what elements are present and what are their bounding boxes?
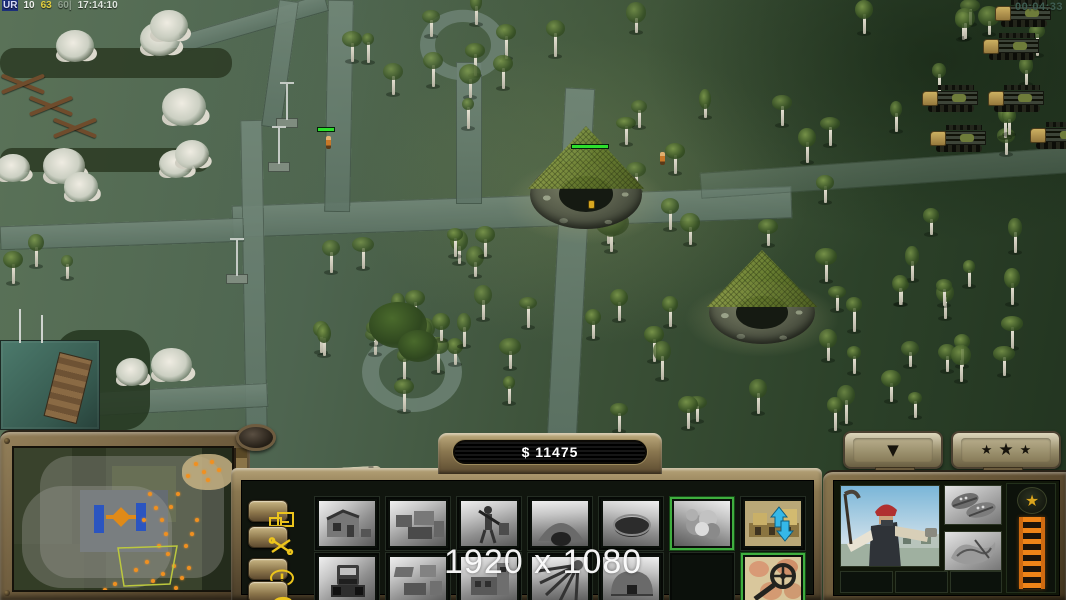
truck-tarp	[952, 94, 966, 102]
build-item-structure-arrows[interactable]	[741, 497, 805, 550]
birch-canopy	[749, 379, 766, 397]
lamppost	[276, 82, 300, 128]
birch-canopy	[955, 8, 974, 28]
worker-unit[interactable]	[660, 152, 665, 165]
birch-canopy	[1004, 268, 1019, 288]
rooftop-building	[0, 340, 100, 430]
truck-tarp	[960, 134, 974, 142]
birch-canopy	[470, 0, 483, 11]
birch-canopy	[474, 285, 492, 305]
birch-canopy	[459, 64, 481, 84]
birch-canopy	[422, 10, 440, 24]
birch-trunk	[527, 306, 530, 328]
down-arrow-icon: ▼	[887, 441, 899, 459]
birch-canopy	[546, 20, 565, 37]
birch-canopy	[317, 324, 331, 343]
birch-canopy	[847, 346, 862, 359]
rank-stars-icon: ★★★	[961, 438, 1051, 462]
control-knob	[236, 424, 276, 451]
birch-canopy	[503, 376, 515, 389]
build-thumbnail	[319, 557, 375, 600]
gla-truck[interactable]	[930, 125, 988, 153]
supply-barrel	[588, 200, 595, 209]
big-tree-canopy	[398, 330, 438, 362]
birch-canopy	[499, 338, 520, 355]
truck-tracks	[1036, 142, 1066, 149]
worker-unit[interactable]	[326, 136, 331, 149]
birch-canopy	[496, 24, 516, 40]
health-bar	[571, 144, 609, 149]
birch-canopy	[342, 31, 362, 47]
collapse-button[interactable]: ▼	[843, 431, 943, 469]
truck-cab	[983, 39, 999, 54]
lamppost	[226, 238, 250, 284]
unit-panel-inner: ★	[833, 480, 1060, 596]
flowering-tree	[150, 10, 187, 42]
unit-panel: ★	[823, 470, 1066, 600]
birch-canopy	[855, 0, 873, 18]
debug-segment: 17:14:10	[77, 0, 119, 11]
birch-canopy	[890, 101, 903, 118]
wooden-ramp	[44, 352, 93, 424]
antenna	[19, 309, 21, 343]
debug-segment: 63	[40, 0, 53, 11]
gla-truck[interactable]	[922, 85, 980, 113]
build-thumbnail	[532, 501, 588, 546]
debug-segment: 60|	[57, 0, 73, 11]
birch-canopy	[631, 100, 648, 114]
truck-tracks	[1001, 20, 1047, 27]
build-thumbnail	[390, 501, 446, 546]
build-thumbnail	[461, 501, 517, 546]
birch-canopy	[432, 313, 451, 331]
build-thumbnail	[603, 501, 659, 546]
birch-canopy	[881, 370, 901, 388]
truck-cab	[988, 91, 1004, 106]
match-timer: 00:04:33	[1015, 1, 1063, 13]
truck-cab	[922, 91, 938, 106]
gla-truck[interactable]	[1030, 122, 1066, 150]
truck-tracks	[989, 53, 1035, 60]
command-slot-empty	[840, 571, 893, 593]
xp-meter: ★	[1006, 483, 1056, 593]
gla-truck[interactable]	[983, 33, 1041, 61]
birch-canopy	[457, 313, 471, 331]
truck-tracks	[936, 145, 982, 152]
rank-star: ★	[981, 444, 993, 457]
money-display: $ 11475	[453, 440, 647, 464]
birch-canopy	[626, 2, 647, 23]
truck-guns	[999, 33, 1035, 38]
build-thumbnail	[319, 501, 375, 546]
birch-canopy	[475, 226, 496, 243]
birch-trunk	[853, 308, 856, 332]
birch-canopy	[493, 55, 513, 72]
flowering-tree	[162, 88, 206, 126]
birch-canopy	[772, 95, 791, 109]
build-thumbnail	[390, 557, 446, 600]
antenna	[41, 315, 43, 343]
birch-canopy	[828, 286, 845, 299]
camera-frustum	[14, 448, 234, 592]
birch-canopy	[28, 234, 44, 251]
birch-canopy	[758, 219, 778, 234]
birch-canopy	[932, 63, 946, 77]
birch-canopy	[610, 289, 628, 306]
birch-canopy	[993, 346, 1014, 361]
truck-guns	[1004, 85, 1040, 90]
lamppost-arm	[272, 126, 286, 128]
birch-canopy	[3, 251, 24, 269]
rank-button[interactable]: ★★★	[951, 431, 1061, 469]
upgrade-cloth[interactable]	[944, 531, 1002, 571]
birch-canopy	[908, 392, 923, 405]
command-slot-empty	[895, 571, 948, 593]
gla-truck[interactable]	[988, 85, 1046, 113]
birch-canopy	[61, 255, 73, 267]
command-slot-empty	[950, 571, 1002, 593]
lamppost-arm	[230, 238, 244, 240]
birch-trunk	[467, 107, 470, 129]
lamppost-pole	[236, 238, 238, 276]
birch-canopy	[1001, 316, 1023, 330]
truck-cab	[995, 6, 1011, 21]
rank-star: ★	[998, 442, 1013, 459]
birch-canopy	[662, 296, 678, 312]
build-item-compound[interactable]	[386, 497, 450, 550]
lamppost-pole	[286, 82, 288, 120]
horn-button[interactable]	[248, 581, 288, 600]
debug-segment: UR	[2, 0, 18, 11]
truck-cab	[1030, 128, 1046, 143]
build-item-map-scan[interactable]	[741, 553, 805, 600]
birch-canopy	[1008, 218, 1022, 236]
birch-canopy	[394, 379, 414, 394]
birch-canopy	[798, 128, 815, 147]
flowering-tree	[64, 172, 99, 201]
truck-guns	[1046, 122, 1066, 127]
build-thumbnail	[745, 557, 801, 600]
truck-guns	[938, 85, 974, 90]
build-item-buildings[interactable]	[386, 553, 450, 600]
lamppost-pole	[278, 126, 280, 164]
wooden-fence	[0, 74, 96, 146]
birch-canopy	[846, 297, 863, 311]
camo-net-canopy	[703, 250, 821, 307]
repair-button[interactable]	[248, 526, 288, 548]
health-bar	[317, 127, 335, 132]
birch-trunk	[367, 42, 370, 63]
minimap[interactable]	[0, 430, 250, 600]
birch-canopy	[827, 397, 844, 413]
build-item-ruined-house[interactable]	[315, 497, 379, 550]
birch-canopy	[963, 260, 976, 273]
gla-bunker[interactable]	[524, 126, 648, 238]
flowering-tree	[0, 154, 30, 182]
birch-canopy	[816, 175, 833, 190]
alert-button[interactable]	[248, 558, 288, 580]
birch-canopy	[465, 43, 486, 58]
flowering-tree	[116, 358, 148, 385]
rank-star-icon: ★	[1017, 487, 1047, 514]
gla-bunker[interactable]	[703, 250, 821, 352]
worker-portrait[interactable]	[840, 485, 940, 567]
truck-tracks	[928, 105, 974, 112]
build-thumbnail	[745, 501, 801, 546]
birch-canopy	[383, 63, 403, 80]
rank-star: ★	[1020, 444, 1032, 457]
birch-canopy	[322, 240, 339, 257]
birch-canopy	[923, 208, 939, 223]
game-screen: UR106360|17:14:10 00:04:33 $ 11475 ▼ ★★★	[0, 0, 1066, 600]
build-thumbnail	[674, 501, 730, 546]
birch-canopy	[653, 341, 670, 362]
birch-canopy	[352, 237, 374, 252]
birch-canopy	[905, 246, 920, 265]
truck-tracks	[994, 105, 1040, 112]
truck-guns	[946, 125, 982, 130]
flowering-tree	[151, 348, 192, 383]
lamppost	[268, 126, 292, 172]
truck-tarp	[1013, 42, 1027, 50]
flowering-tree	[56, 30, 94, 62]
truck-tarp	[1060, 131, 1066, 139]
birch-canopy	[610, 403, 628, 416]
birch-canopy	[680, 213, 699, 232]
birch-canopy	[820, 117, 840, 130]
money-tab: $ 11475	[438, 433, 662, 474]
resolution-watermark: 1920 x 1080	[444, 543, 704, 582]
birch-canopy	[519, 297, 538, 310]
minimap-view[interactable]	[12, 446, 234, 592]
upgrade-shoes[interactable]	[944, 485, 1002, 525]
build-item-truck[interactable]	[315, 553, 379, 600]
structures-button[interactable]	[248, 500, 288, 522]
birch-canopy	[585, 309, 601, 325]
birch-trunk	[403, 359, 406, 380]
truck-tarp	[1018, 94, 1032, 102]
debug-overlay: UR106360|17:14:10	[2, 0, 123, 11]
birch-canopy	[699, 89, 711, 109]
birch-canopy	[951, 345, 970, 365]
debug-segment: 10	[22, 0, 35, 11]
lamppost-arm	[280, 82, 294, 84]
birch-canopy	[362, 33, 374, 45]
xp-ladder	[1019, 517, 1045, 589]
birch-canopy	[665, 143, 685, 159]
camo-net-canopy	[524, 126, 648, 189]
truck-cab	[930, 131, 946, 146]
birch-canopy	[901, 341, 919, 356]
